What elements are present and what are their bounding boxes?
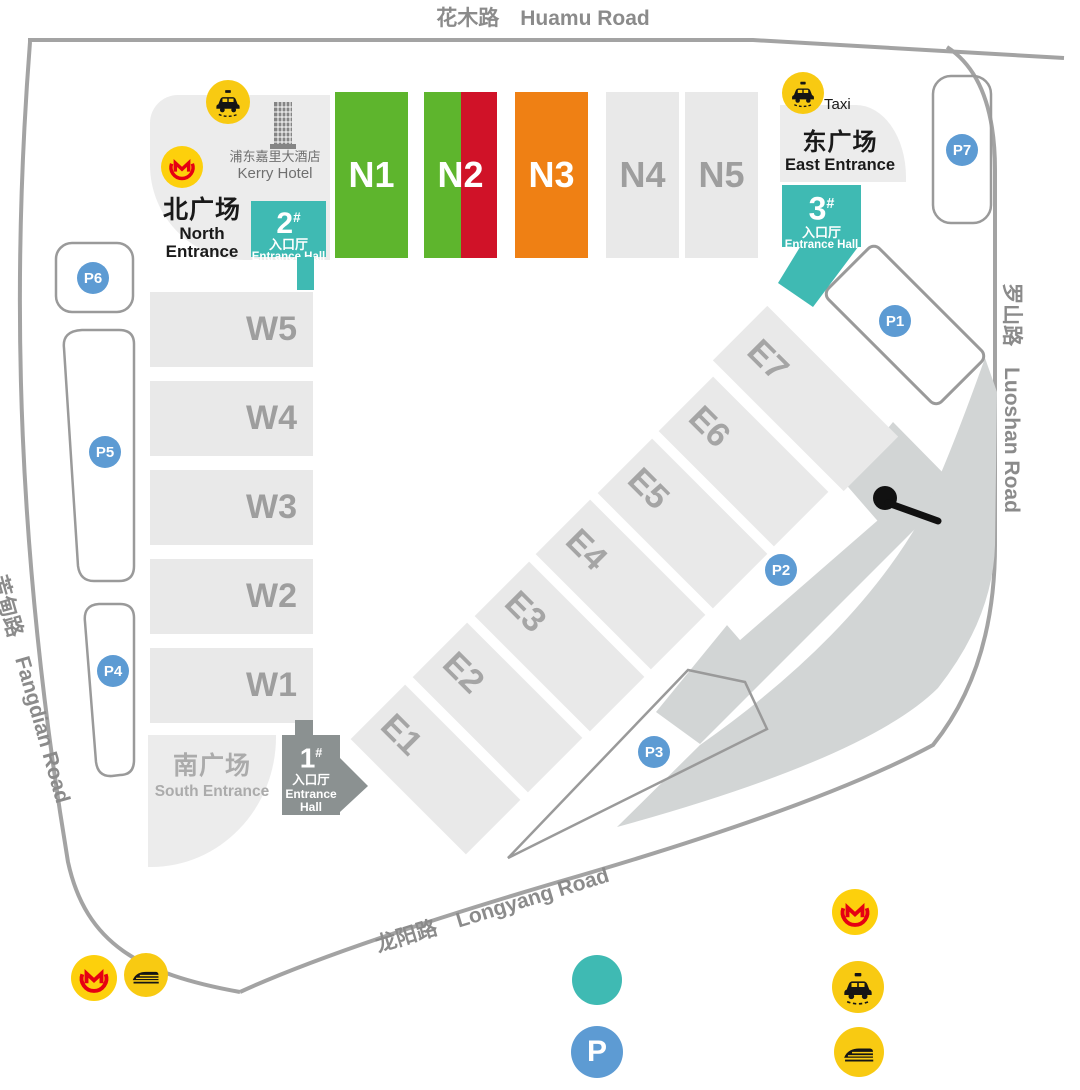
taxi-text-label: Taxi	[824, 96, 851, 113]
entrance-hall-3-hash: #	[826, 196, 834, 212]
metro-icon-southwest	[71, 955, 117, 1001]
east-entrance-cn: 东广场	[782, 130, 898, 155]
metro-icon-southeast	[832, 889, 878, 935]
entrance1-connector-arrow	[340, 758, 368, 812]
hall-e4-label: E4	[558, 522, 615, 579]
hall-w4: W4	[150, 381, 313, 456]
hall-e7-label: E7	[739, 332, 796, 389]
huamu-road-line	[28, 40, 1064, 58]
hall-n4: N4	[606, 92, 679, 258]
south-entrance-cn: 南广场	[148, 752, 276, 781]
entrance-hall-3-number: 3#	[782, 185, 861, 225]
hall-w3-label: W3	[246, 488, 297, 527]
entrance-hall-3-num-text: 3	[809, 191, 827, 227]
hall-w2: W2	[150, 559, 313, 634]
entrance-hall-2-cn: 入口厅	[251, 238, 326, 252]
entrance-hall-1-number: 1#	[282, 735, 340, 773]
expo-center-map: N1 N2 N3 N4 N5 W5 W4 W3 W2 W1 E1 E2 E3 E…	[0, 0, 1080, 1090]
entrance-hall-1-stem	[295, 720, 313, 735]
parking-p2-label: P2	[772, 562, 790, 579]
entrance-hall-1-en2: Hall	[282, 801, 340, 814]
parking-p1-label: P1	[886, 313, 904, 330]
parking-p6-label: P6	[84, 270, 102, 287]
north-entrance-label: 北广场 North Entrance	[148, 197, 256, 261]
taxi-icon-legend	[832, 961, 884, 1013]
entrance-legend-dot	[572, 955, 622, 1005]
hall-n1-label: N1	[348, 154, 394, 196]
parking-p4-label: P4	[104, 663, 122, 680]
entrance-hall-1-cn: 入口厅	[282, 773, 340, 788]
luoshan-road-label: 罗山路 Luoshan Road	[998, 248, 1028, 548]
parking-p3-label: P3	[645, 744, 663, 761]
train-icon-legend	[834, 1027, 884, 1077]
parking-p6: P6	[77, 262, 109, 294]
hall-w4-label: W4	[246, 399, 297, 438]
hall-n3: N3	[515, 92, 588, 258]
hall-e6-label: E6	[681, 399, 738, 456]
hall-w5: W5	[150, 292, 313, 367]
parking-p7: P7	[946, 134, 978, 166]
parking-legend-circle: P	[571, 1026, 623, 1078]
hall-n5: N5	[685, 92, 758, 258]
entrance-hall-3-cn: 入口厅	[782, 225, 861, 240]
parking-p1: P1	[879, 305, 911, 337]
hall-w5-label: W5	[246, 310, 297, 349]
hall-n5-label: N5	[698, 154, 744, 196]
hall-n3-label: N3	[528, 154, 574, 196]
east-entrance-en: East Entrance	[782, 157, 898, 174]
parking-p4: P4	[97, 655, 129, 687]
east-entrance-label: 东广场 East Entrance	[782, 130, 898, 175]
entrance3-connector-arrow	[778, 247, 858, 307]
entrance-hall-2-hash: #	[293, 210, 301, 225]
metro-icon-north	[161, 146, 203, 188]
entrance-hall-1-num-text: 1	[300, 742, 316, 773]
north-entrance-en1: North	[148, 225, 256, 243]
parking-p5-label: P5	[96, 444, 114, 461]
hall-n2: N2	[424, 92, 497, 258]
north-entrance-cn: 北广场	[148, 197, 256, 223]
hall-e5-label: E5	[620, 461, 677, 518]
taxi-icon-north	[206, 80, 250, 124]
hall-w3: W3	[150, 470, 313, 545]
parking-legend-p: P	[587, 1035, 607, 1069]
hall-w1: W1	[150, 648, 313, 723]
hall-n2-label: N2	[424, 92, 497, 258]
entrance-hall-2-number: 2#	[251, 201, 326, 238]
hotel-cn: 浦东嘉里大酒店	[210, 146, 340, 165]
entrance-hall-2-num-text: 2	[276, 207, 293, 240]
hall-e1-label: E1	[373, 707, 430, 764]
parking-p3: P3	[638, 736, 670, 768]
entrance-hall-1: 1# 入口厅 Entrance Hall	[282, 735, 340, 815]
taxi-icon-east	[782, 72, 824, 114]
hall-w2-label: W2	[246, 577, 297, 616]
entrance-hall-2-en: Entrance Hall	[251, 252, 326, 263]
entrance-hall-3-en: Entrance Hall	[782, 240, 861, 251]
south-entrance-label: 南广场 South Entrance	[148, 752, 276, 801]
entrance-hall-2: 2# 入口厅 Entrance Hall	[251, 201, 326, 257]
train-icon-southwest	[124, 953, 168, 997]
entrance-hall-1-hash: #	[315, 746, 322, 760]
north-entrance-en2: Entrance	[148, 243, 256, 261]
entrance-hall-3: 3# 入口厅 Entrance Hall	[782, 185, 861, 247]
parking-p7-label: P7	[953, 142, 971, 159]
hall-w1-label: W1	[246, 666, 297, 705]
parking-p2: P2	[765, 554, 797, 586]
huamu-road-label: 花木路 Huamu Road	[393, 2, 693, 32]
hall-n4-label: N4	[619, 154, 665, 196]
hall-n1: N1	[335, 92, 408, 258]
hotel-label: 浦东嘉里大酒店 Kerry Hotel	[210, 146, 340, 182]
south-entrance-en: South Entrance	[148, 783, 276, 801]
entrance-hall-2-stem	[297, 257, 314, 290]
p4-lot-outline	[85, 604, 134, 776]
parking-p5: P5	[89, 436, 121, 468]
hall-e3-label: E3	[497, 584, 554, 641]
hall-e2-label: E2	[435, 645, 492, 702]
hotel-en: Kerry Hotel	[210, 165, 340, 182]
